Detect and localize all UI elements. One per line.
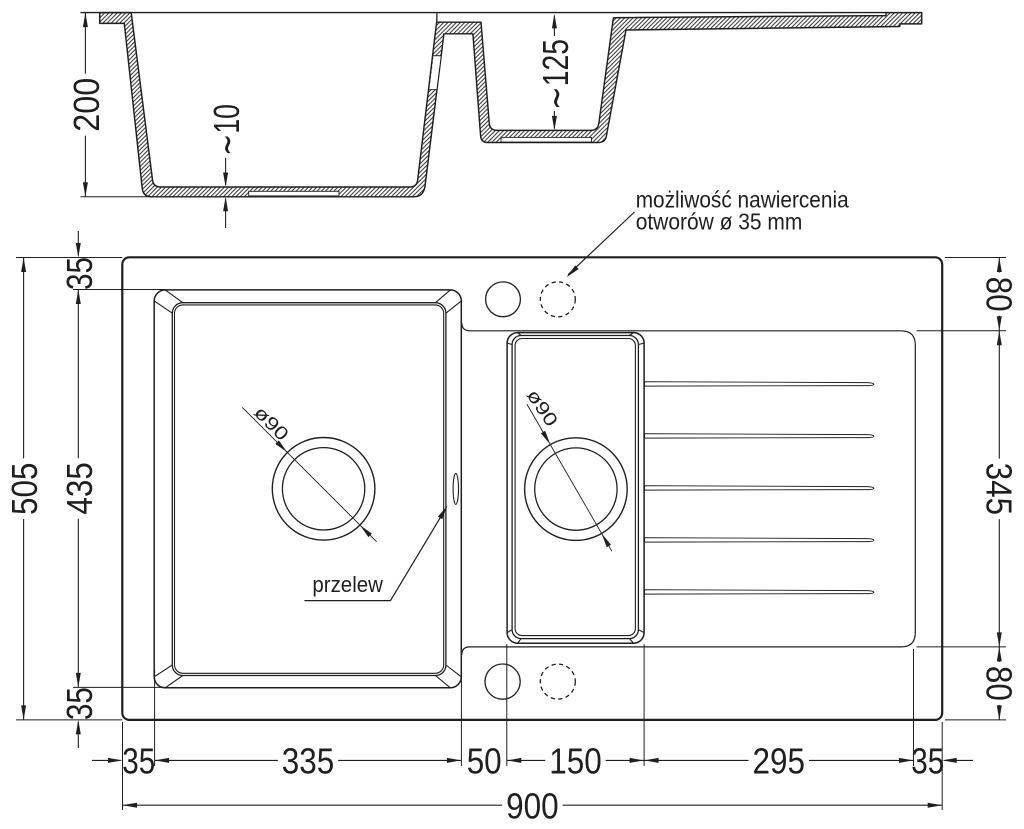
- svg-text:80: 80: [979, 666, 1020, 701]
- svg-text:150: 150: [549, 741, 602, 782]
- svg-text:295: 295: [753, 741, 806, 782]
- svg-text:przelew: przelew: [312, 572, 383, 597]
- svg-text:otworów ø 35 mm: otworów ø 35 mm: [636, 208, 803, 234]
- svg-text:50: 50: [467, 741, 502, 782]
- svg-text:35: 35: [122, 741, 155, 782]
- svg-text:∼125: ∼125: [535, 39, 576, 110]
- svg-text:35: 35: [911, 741, 944, 782]
- svg-text:35: 35: [59, 257, 100, 290]
- svg-text:35: 35: [59, 687, 100, 720]
- svg-text:200: 200: [66, 78, 107, 132]
- svg-text:335: 335: [282, 741, 335, 782]
- svg-text:345: 345: [979, 463, 1020, 516]
- svg-text:505: 505: [4, 462, 45, 515]
- svg-text:80: 80: [979, 277, 1020, 312]
- svg-text:∼10: ∼10: [206, 104, 247, 156]
- svg-text:900: 900: [506, 786, 559, 827]
- svg-text:435: 435: [59, 462, 100, 515]
